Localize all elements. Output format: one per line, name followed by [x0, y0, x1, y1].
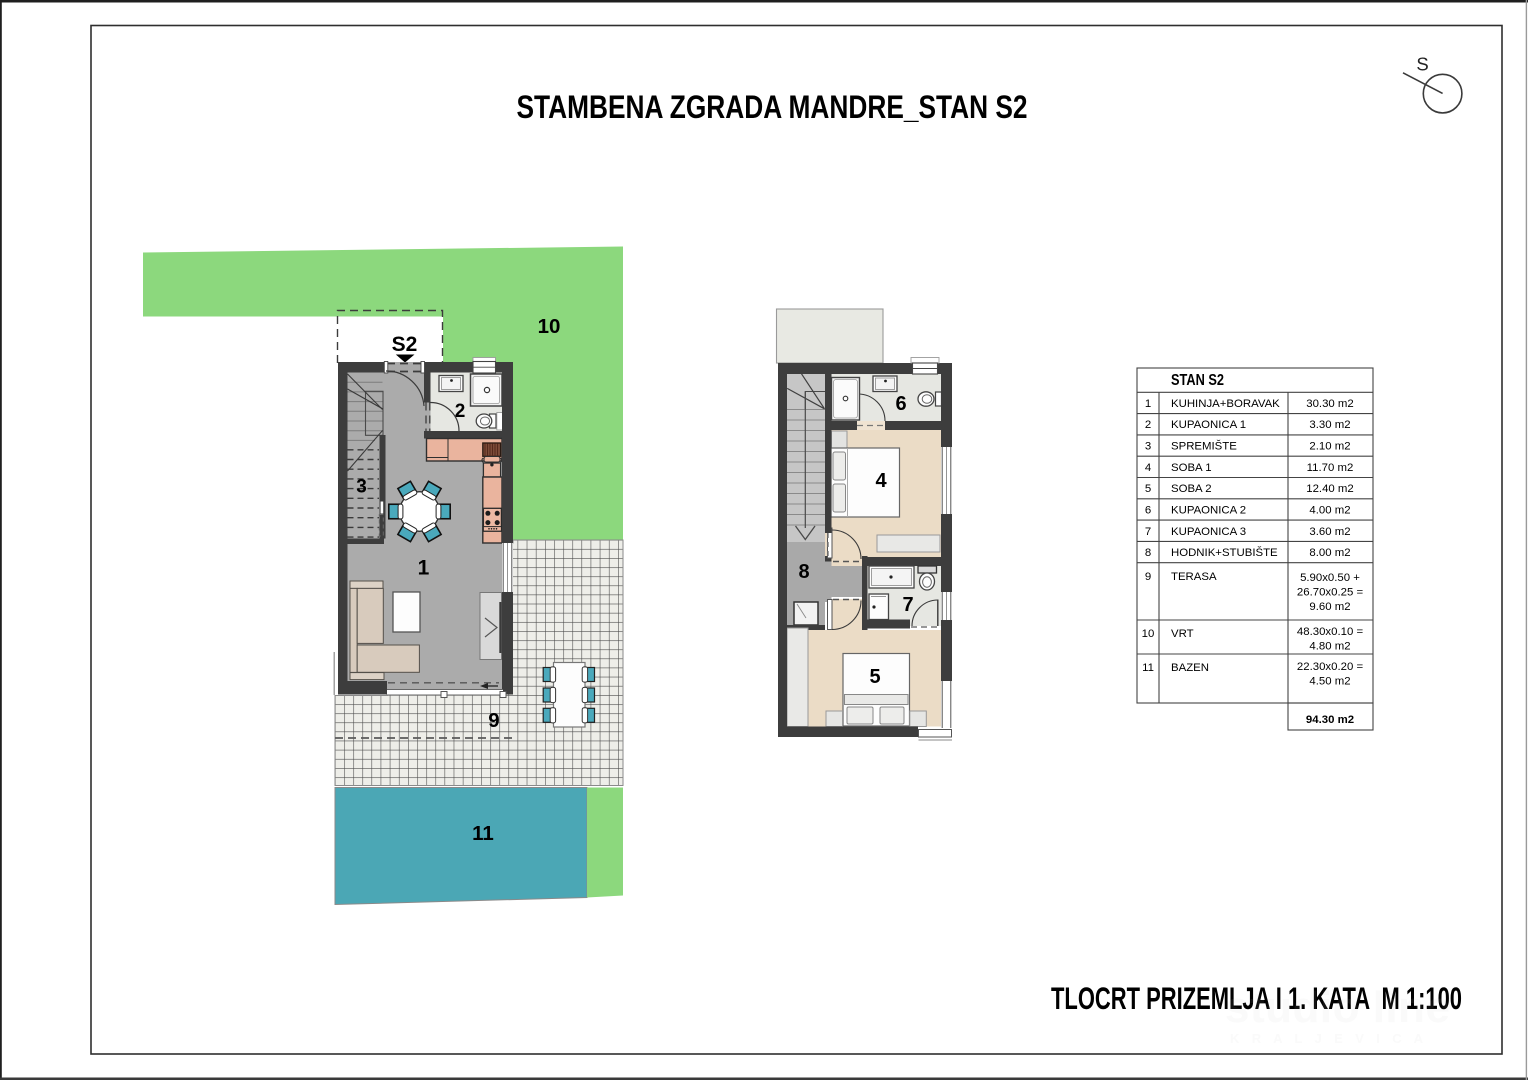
svg-text:10: 10 [538, 315, 561, 338]
svg-text:studio line: studio line [1225, 983, 1450, 1032]
svg-text:8: 8 [798, 561, 809, 583]
svg-text:STAN S2: STAN S2 [1171, 372, 1224, 389]
svg-text:1: 1 [1145, 398, 1151, 410]
svg-text:KUPAONICA 3: KUPAONICA 3 [1171, 526, 1246, 538]
svg-text:4: 4 [875, 470, 887, 492]
svg-text:9: 9 [488, 709, 499, 732]
svg-text:KUPAONICA 2: KUPAONICA 2 [1171, 505, 1246, 517]
svg-text:SOBA 2: SOBA 2 [1171, 483, 1212, 495]
svg-text:KUPAONICA 1: KUPAONICA 1 [1171, 419, 1246, 431]
svg-text:8.00 m2: 8.00 m2 [1309, 547, 1350, 559]
svg-text:4.00 m2: 4.00 m2 [1309, 505, 1350, 517]
svg-text:TERASA: TERASA [1171, 571, 1217, 583]
svg-text:22.30x0.20 =: 22.30x0.20 = [1297, 661, 1364, 673]
svg-text:4.80 m2: 4.80 m2 [1309, 641, 1350, 653]
svg-text:HODNIK+STUBIŠTE: HODNIK+STUBIŠTE [1171, 546, 1278, 559]
svg-text:5.90x0.50 +: 5.90x0.50 + [1300, 572, 1360, 584]
svg-text:BAZEN: BAZEN [1171, 662, 1209, 674]
svg-text:S: S [1416, 54, 1428, 75]
svg-text:7: 7 [1145, 526, 1151, 538]
svg-text:12.40 m2: 12.40 m2 [1306, 483, 1354, 495]
svg-text:2.10 m2: 2.10 m2 [1309, 441, 1350, 453]
svg-text:48.30x0.10 =: 48.30x0.10 = [1297, 626, 1364, 638]
svg-text:5: 5 [1145, 483, 1151, 495]
svg-text:STAMBENA ZGRADA MANDRE_STAN S2: STAMBENA ZGRADA MANDRE_STAN S2 [517, 89, 1028, 125]
svg-text:6: 6 [895, 393, 906, 415]
svg-text:94.30 m2: 94.30 m2 [1306, 714, 1354, 726]
svg-text:6: 6 [1145, 505, 1151, 517]
svg-text:8: 8 [1145, 547, 1151, 559]
svg-text:9: 9 [1145, 571, 1151, 583]
svg-text:4.50 m2: 4.50 m2 [1309, 676, 1350, 688]
svg-text:9.60 m2: 9.60 m2 [1309, 601, 1350, 613]
svg-text:2: 2 [1145, 419, 1151, 431]
svg-text:3: 3 [1145, 441, 1151, 453]
svg-text:SOBA 1: SOBA 1 [1171, 462, 1212, 474]
svg-text:K R A L J E V I C A: K R A L J E V I C A [1230, 1031, 1430, 1046]
svg-text:5: 5 [869, 666, 880, 688]
svg-text:10: 10 [1142, 628, 1155, 640]
svg-text:4: 4 [1145, 462, 1151, 474]
svg-text:1: 1 [418, 557, 430, 580]
svg-text:30.30 m2: 30.30 m2 [1306, 398, 1354, 410]
svg-text:3.60 m2: 3.60 m2 [1309, 526, 1350, 538]
svg-text:7: 7 [902, 594, 913, 616]
svg-text:KUHINJA+BORAVAK: KUHINJA+BORAVAK [1171, 398, 1280, 410]
svg-text:SPREMIŠTE: SPREMIŠTE [1171, 440, 1237, 453]
svg-text:3: 3 [356, 477, 367, 498]
svg-text:11: 11 [472, 822, 494, 845]
svg-text:3.30 m2: 3.30 m2 [1309, 419, 1350, 431]
svg-text:11.70 m2: 11.70 m2 [1307, 462, 1354, 474]
svg-text:S2: S2 [392, 333, 418, 356]
svg-text:26.70x0.25 =: 26.70x0.25 = [1297, 587, 1364, 599]
svg-text:11: 11 [1142, 662, 1154, 674]
svg-text:VRT: VRT [1171, 628, 1194, 640]
